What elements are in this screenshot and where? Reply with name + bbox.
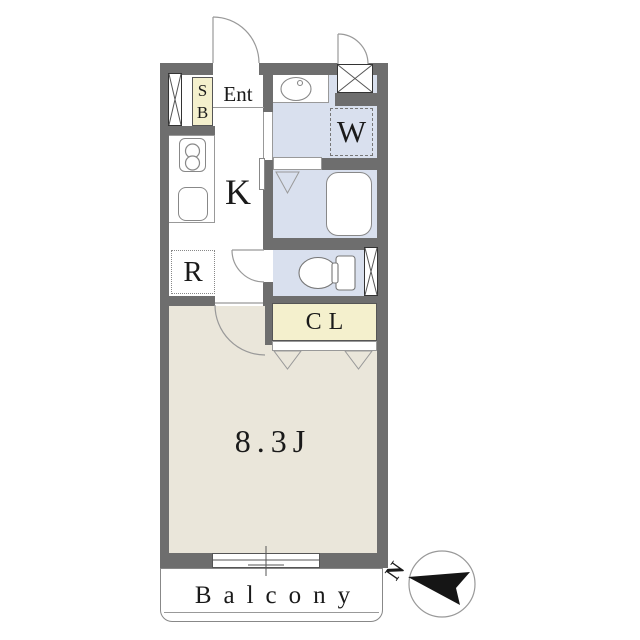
basin-faucet-icon	[298, 81, 303, 86]
floor-plan: S B Ent K W R CL 8.3J Balcony N	[0, 0, 640, 640]
toilet-bowl	[299, 258, 337, 289]
entry-door-swing	[213, 17, 259, 63]
shoe-box-letter-s: S	[198, 80, 207, 102]
closet-label: CL	[272, 303, 377, 341]
main-room-area-label: 8.3J	[200, 421, 340, 461]
meter-box-top-hatch	[338, 65, 372, 92]
washer-label: W	[330, 108, 373, 156]
meter-box-toilet-hatch	[365, 248, 377, 295]
toilet-tank	[336, 256, 355, 290]
balcony-label: Balcony	[180, 582, 365, 610]
shoe-box-letter-b: B	[197, 102, 208, 124]
refrigerator-label: R	[171, 250, 215, 294]
toilet-door-swing	[232, 250, 264, 282]
kitchen-label: K	[218, 172, 258, 212]
room-door-swing	[215, 305, 265, 355]
closet-door-triangle-left	[274, 351, 301, 369]
entrance-label: Ent	[211, 80, 265, 108]
utility-door-swing	[338, 34, 368, 64]
stove-burner-bottom	[186, 156, 200, 170]
bath-door-triangle	[276, 172, 299, 193]
wash-basin	[281, 78, 311, 101]
toilet-handle	[332, 263, 338, 283]
shoe-box-label: S B	[192, 77, 213, 126]
closet-door-triangle-right	[345, 351, 372, 369]
meter-box-left-hatch	[169, 74, 181, 125]
